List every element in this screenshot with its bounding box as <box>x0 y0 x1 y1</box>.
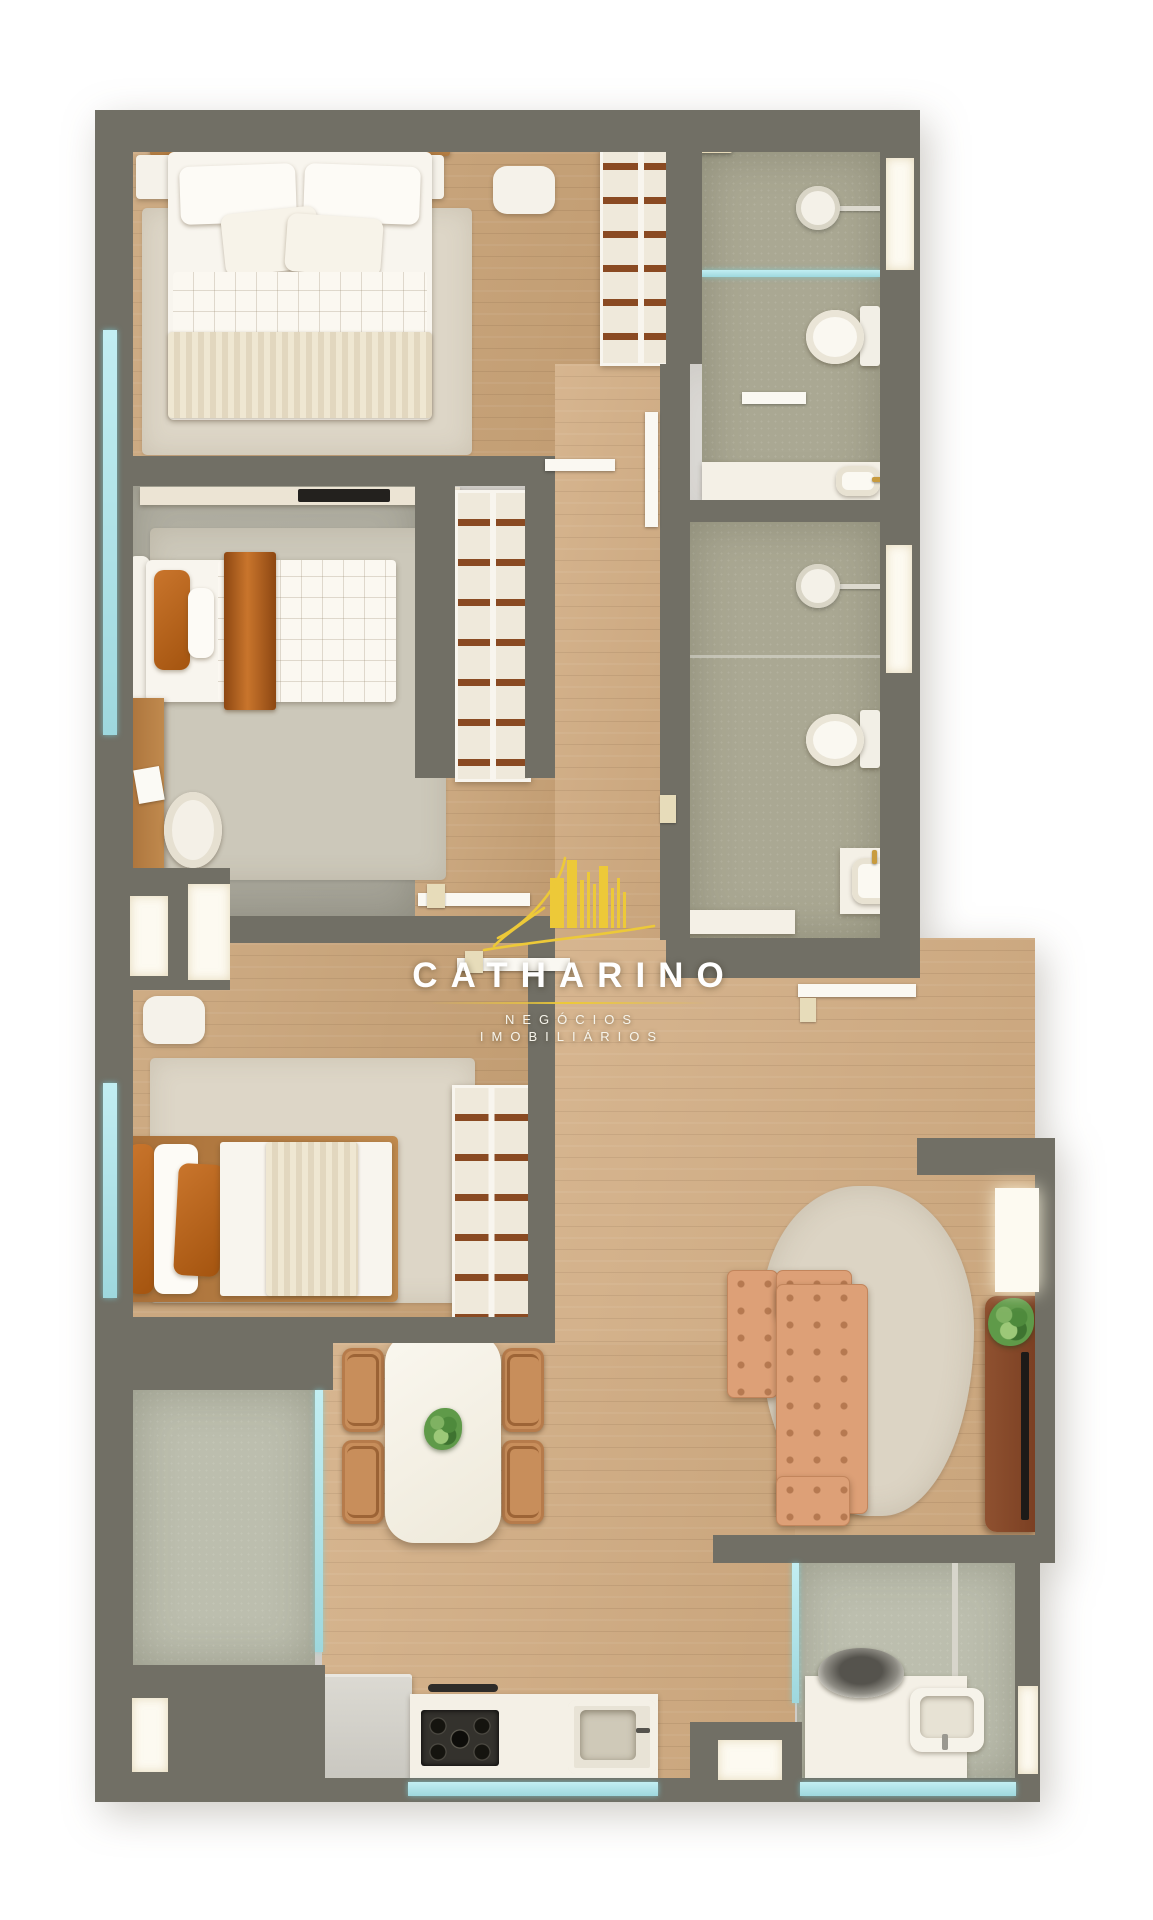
bedroom-3-wardrobe-rails <box>452 1085 531 1323</box>
dining-chair <box>502 1348 544 1432</box>
wall-segment <box>95 110 920 152</box>
bed-throw-blanket <box>266 1142 358 1296</box>
brand-name: CATHARINO <box>390 956 746 996</box>
partition <box>952 1563 958 1681</box>
wall-niche <box>1018 1686 1038 1774</box>
console-plant <box>988 1298 1034 1346</box>
tv-flatscreen <box>1021 1352 1029 1520</box>
wall-segment <box>917 1138 1055 1175</box>
bathroom-1-door <box>742 392 806 404</box>
desk-chair <box>164 792 222 868</box>
sink-faucet <box>942 1734 948 1750</box>
service-window-glass <box>800 1782 1016 1796</box>
wall-segment <box>525 486 555 778</box>
pouf <box>143 996 205 1044</box>
wall-segment <box>95 1317 555 1343</box>
dining-chair <box>342 1348 384 1432</box>
dining-chair <box>342 1440 384 1524</box>
table-plant <box>424 1408 462 1450</box>
window-glass <box>103 1083 117 1298</box>
dining-chair <box>502 1440 544 1524</box>
gas-cooktop <box>421 1710 499 1766</box>
wall-segment <box>660 500 920 522</box>
wall-niche <box>132 1698 168 1772</box>
master-bedroom-door <box>545 459 615 471</box>
round-wash-tub <box>818 1648 904 1698</box>
wall-segment <box>415 486 455 778</box>
sink-basin <box>920 1696 974 1738</box>
bed-throw-blanket <box>168 332 432 418</box>
wall-niche <box>886 545 912 673</box>
bedroom-3-bed <box>118 1136 398 1302</box>
oven-handle <box>428 1684 498 1692</box>
rain-shower-head <box>796 564 840 608</box>
balcony-window-niche <box>995 1188 1039 1292</box>
wall-niche <box>130 896 168 976</box>
bed-pillow <box>188 588 214 658</box>
tv-flatscreen <box>298 489 390 502</box>
wall-segment <box>713 1535 1037 1563</box>
master-bed <box>168 152 432 420</box>
brand-subtitle-line2: IMOBILIÁRIOS <box>390 1028 746 1045</box>
tile-seam <box>690 655 880 658</box>
glass-partition <box>792 1563 799 1703</box>
wall-niche <box>188 884 230 980</box>
kitchen-window-glass <box>408 1782 658 1796</box>
laundry-room-floor <box>133 1390 315 1665</box>
door-jamb <box>800 998 816 1022</box>
bedroom-2-wardrobe-rails <box>455 490 531 782</box>
window-glass <box>103 330 117 735</box>
wall-segment <box>95 1343 333 1390</box>
laundry-sink <box>910 1688 984 1752</box>
bed-cushion <box>284 213 384 278</box>
caramel-pillow <box>173 1163 225 1277</box>
rain-shower-head <box>796 186 840 230</box>
bathroom-2-door <box>645 412 658 527</box>
sofa-chaise <box>727 1270 778 1398</box>
window-niche <box>718 1740 782 1780</box>
pouf <box>493 166 555 214</box>
refrigerator <box>322 1674 412 1780</box>
bedroom-2-bed <box>128 556 398 706</box>
wall-segment <box>95 456 555 486</box>
entrance-door <box>798 984 916 997</box>
brand-watermark: CATHARINO NEGÓCIOS IMOBILIÁRIOS <box>390 852 746 1045</box>
notebook <box>133 766 165 804</box>
sofa-ottoman <box>776 1476 850 1526</box>
shower-glass-screen <box>702 270 880 277</box>
kitchen-sink <box>568 1700 656 1774</box>
golden-buildings-skyline-icon <box>390 852 746 956</box>
gold-divider-line <box>428 1002 708 1004</box>
sink-basin <box>580 1710 636 1760</box>
caramel-bed-runner <box>224 552 276 710</box>
floorplan-render: CATHARINO NEGÓCIOS IMOBILIÁRIOS <box>0 0 1153 1920</box>
gold-faucet <box>872 850 877 864</box>
caramel-pillow <box>154 570 190 670</box>
wall-segment <box>666 152 702 364</box>
toilet <box>806 310 864 364</box>
toilet <box>806 714 864 766</box>
glass-partition <box>315 1390 323 1652</box>
sink-faucet <box>636 1728 650 1733</box>
brand-subtitle-line1: NEGÓCIOS <box>390 1011 746 1028</box>
door-jamb <box>660 795 676 823</box>
wall-niche <box>886 158 914 270</box>
